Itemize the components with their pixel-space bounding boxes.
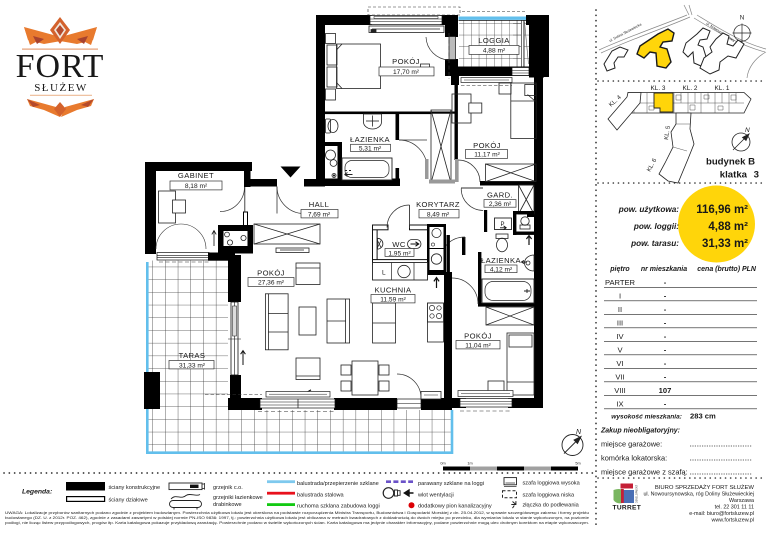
svg-text:4,12 m²: 4,12 m² bbox=[490, 267, 513, 274]
svg-text:N: N bbox=[745, 127, 750, 134]
svg-text:VI: VI bbox=[616, 359, 623, 368]
svg-text:nr mieszkania: nr mieszkania bbox=[641, 266, 687, 273]
svg-text:KL. 3: KL. 3 bbox=[651, 85, 666, 92]
svg-text:ściany konstrukcyjne: ściany konstrukcyjne bbox=[109, 485, 161, 491]
svg-text:GARD.: GARD. bbox=[487, 191, 513, 200]
svg-text:L: L bbox=[382, 270, 386, 277]
svg-text:pow. loggii:: pow. loggii: bbox=[633, 222, 679, 231]
svg-text:grzejniki łazienkowe: grzejniki łazienkowe bbox=[213, 495, 263, 501]
svg-text:KL. 2: KL. 2 bbox=[683, 85, 698, 92]
svg-text:3: 3 bbox=[754, 170, 759, 181]
svg-text:HALL: HALL bbox=[309, 200, 330, 209]
svg-text:LOGGIA: LOGGIA bbox=[478, 36, 510, 45]
svg-text:BIURO SPRZEDAŻY FORT SŁUŻEW: BIURO SPRZEDAŻY FORT SŁUŻEW bbox=[655, 484, 755, 491]
svg-text:5m: 5m bbox=[575, 462, 580, 466]
svg-text:VII: VII bbox=[615, 373, 624, 382]
svg-text:IX: IX bbox=[616, 400, 623, 409]
svg-text:31,33 m²: 31,33 m² bbox=[179, 363, 206, 370]
svg-text:pow. tarasu:: pow. tarasu: bbox=[630, 239, 679, 248]
svg-text:szafa loggiowa wysoka: szafa loggiowa wysoka bbox=[523, 481, 581, 487]
svg-text:III: III bbox=[617, 319, 623, 328]
svg-text:116,96 m²: 116,96 m² bbox=[696, 204, 748, 216]
svg-text:dodatkowy pion kanalizacyjny: dodatkowy pion kanalizacyjny bbox=[418, 504, 492, 510]
svg-text:grzejnik c.o.: grzejnik c.o. bbox=[213, 485, 243, 491]
svg-text:1,95 m²: 1,95 m² bbox=[388, 251, 411, 258]
svg-text:miejsce garażowe:: miejsce garażowe: bbox=[601, 440, 662, 449]
svg-text:SŁUŻEW: SŁUŻEW bbox=[34, 82, 88, 94]
svg-text:WC: WC bbox=[392, 240, 406, 249]
svg-text:ŁAZIENKA: ŁAZIENKA bbox=[481, 256, 521, 265]
svg-text:wysokość mieszkania:: wysokość mieszkania: bbox=[611, 414, 682, 421]
svg-text:17,70 m²: 17,70 m² bbox=[393, 69, 420, 76]
svg-text:4,88 m²: 4,88 m² bbox=[483, 48, 506, 55]
svg-text:www.fortsluzew.pl: www.fortsluzew.pl bbox=[710, 518, 754, 524]
svg-text:ruchoma szklana zabudowa loggi: ruchoma szklana zabudowa loggi bbox=[297, 504, 380, 510]
svg-text:złączka do podlewania: złączka do podlewania bbox=[523, 503, 580, 509]
svg-text:cena (brutto) PLN: cena (brutto) PLN bbox=[697, 266, 757, 273]
svg-text:11,59 m²: 11,59 m² bbox=[380, 297, 406, 304]
svg-text:VIII: VIII bbox=[614, 386, 625, 395]
svg-text:KL. 1: KL. 1 bbox=[715, 85, 730, 92]
svg-text:TURRET: TURRET bbox=[613, 505, 642, 512]
svg-text:I: I bbox=[619, 292, 621, 301]
svg-text:wlot wentylacji: wlot wentylacji bbox=[417, 492, 454, 498]
svg-text:Warszawa: Warszawa bbox=[729, 498, 754, 504]
svg-text:miejsce garażowe z szafą:: miejsce garażowe z szafą: bbox=[601, 468, 688, 477]
svg-text:Legenda:: Legenda: bbox=[22, 489, 52, 496]
svg-text:31,33 m²: 31,33 m² bbox=[702, 238, 748, 250]
svg-text:komórka lokatorska:: komórka lokatorska: bbox=[601, 454, 667, 463]
svg-text:IV: IV bbox=[616, 332, 624, 341]
svg-text:klatka: klatka bbox=[720, 170, 748, 181]
svg-text:ściany działowe: ściany działowe bbox=[109, 498, 148, 504]
svg-text:4,88 m²: 4,88 m² bbox=[708, 221, 748, 233]
svg-text:TARAS: TARAS bbox=[179, 351, 206, 360]
svg-text:e-mail: biuro@fortsluzew.pl: e-mail: biuro@fortsluzew.pl bbox=[689, 511, 754, 517]
svg-text:11,17 m²: 11,17 m² bbox=[474, 152, 500, 159]
svg-text:piętro: piętro bbox=[609, 266, 630, 273]
svg-text:balustrada stalowa: balustrada stalowa bbox=[297, 492, 345, 498]
svg-text:107: 107 bbox=[659, 386, 672, 395]
svg-text:8,18 m²: 8,18 m² bbox=[185, 183, 208, 190]
svg-text:Zakup nieobligatoryjny:: Zakup nieobligatoryjny: bbox=[600, 428, 680, 435]
svg-text:pow. użytkowa:: pow. użytkowa: bbox=[618, 205, 679, 214]
svg-text:KUCHNIA: KUCHNIA bbox=[375, 286, 413, 295]
svg-text:FORT: FORT bbox=[16, 48, 105, 85]
svg-text:tel. 22 301 11 11: tel. 22 301 11 11 bbox=[715, 505, 754, 511]
svg-text:8,49 m²: 8,49 m² bbox=[427, 212, 450, 219]
svg-text:27,36 m²: 27,36 m² bbox=[258, 280, 285, 287]
svg-text:PARTER: PARTER bbox=[605, 278, 636, 287]
svg-text:drabinkowe: drabinkowe bbox=[213, 502, 242, 508]
svg-text:II: II bbox=[618, 305, 622, 314]
svg-text:balustrada/przepierzenie szkla: balustrada/przepierzenie szklane bbox=[297, 481, 379, 487]
svg-text:0m: 0m bbox=[440, 462, 445, 466]
svg-text:POKÓJ: POKÓJ bbox=[473, 141, 501, 150]
svg-text:11,04 m²: 11,04 m² bbox=[465, 343, 491, 350]
svg-text:KORYTARZ: KORYTARZ bbox=[416, 200, 460, 209]
svg-text:N: N bbox=[740, 15, 745, 22]
svg-text:parawany szklane na loggi: parawany szklane na loggi bbox=[418, 481, 484, 487]
svg-text:5,31 m²: 5,31 m² bbox=[359, 146, 382, 153]
svg-text:szafa loggiowa niska: szafa loggiowa niska bbox=[523, 493, 576, 499]
svg-text:2,36 m²: 2,36 m² bbox=[489, 201, 512, 208]
svg-text:DEVELOPMENT: DEVELOPMENT bbox=[636, 484, 639, 503]
svg-text:283 cm: 283 cm bbox=[690, 412, 716, 421]
svg-text:POKÓJ: POKÓJ bbox=[257, 269, 285, 278]
svg-text:GABINET: GABINET bbox=[178, 171, 214, 180]
svg-text:1m: 1m bbox=[467, 462, 472, 466]
svg-text:POKÓJ: POKÓJ bbox=[392, 57, 420, 66]
svg-text:P: P bbox=[500, 222, 504, 228]
svg-text:POKÓJ: POKÓJ bbox=[464, 332, 492, 341]
svg-text:budynek B: budynek B bbox=[706, 157, 755, 168]
svg-text:ul. Nowoursynowska, róg Doliny: ul. Nowoursynowska, róg Doliny Służewiec… bbox=[643, 492, 754, 498]
svg-text:podłogi, nie licząc listew prz: podłogi, nie licząc listew przypodłogowy… bbox=[5, 520, 589, 525]
svg-text:7,69 m²: 7,69 m² bbox=[308, 212, 331, 219]
svg-text:ŁAZIENKA: ŁAZIENKA bbox=[350, 135, 390, 144]
